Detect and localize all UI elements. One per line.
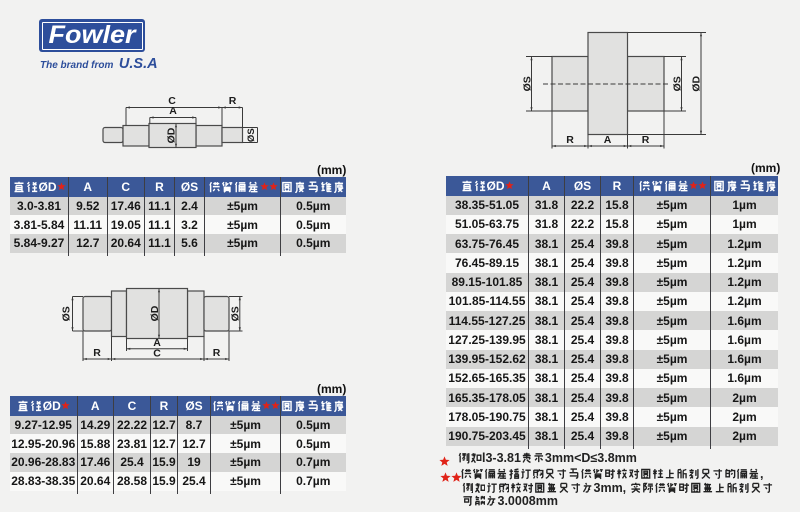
svg-text:ØS: ØS — [60, 306, 72, 321]
svg-text:R: R — [642, 134, 650, 146]
svg-text:R: R — [566, 134, 574, 146]
svg-text:ØS: ØS — [521, 76, 533, 91]
svg-text:ØD: ØD — [165, 127, 177, 143]
svg-text:R: R — [213, 347, 221, 359]
svg-text:ØS: ØS — [230, 306, 242, 321]
svg-text:ØS: ØS — [671, 76, 683, 91]
svg-text:A: A — [604, 134, 612, 146]
svg-text:ØD: ØD — [149, 305, 161, 321]
svg-text:R: R — [229, 95, 237, 107]
svg-text:A: A — [169, 105, 177, 117]
svg-text:C: C — [153, 348, 161, 360]
svg-text:ØS: ØS — [246, 128, 257, 142]
svg-text:ØD: ØD — [691, 76, 703, 92]
svg-text:R: R — [93, 347, 101, 359]
